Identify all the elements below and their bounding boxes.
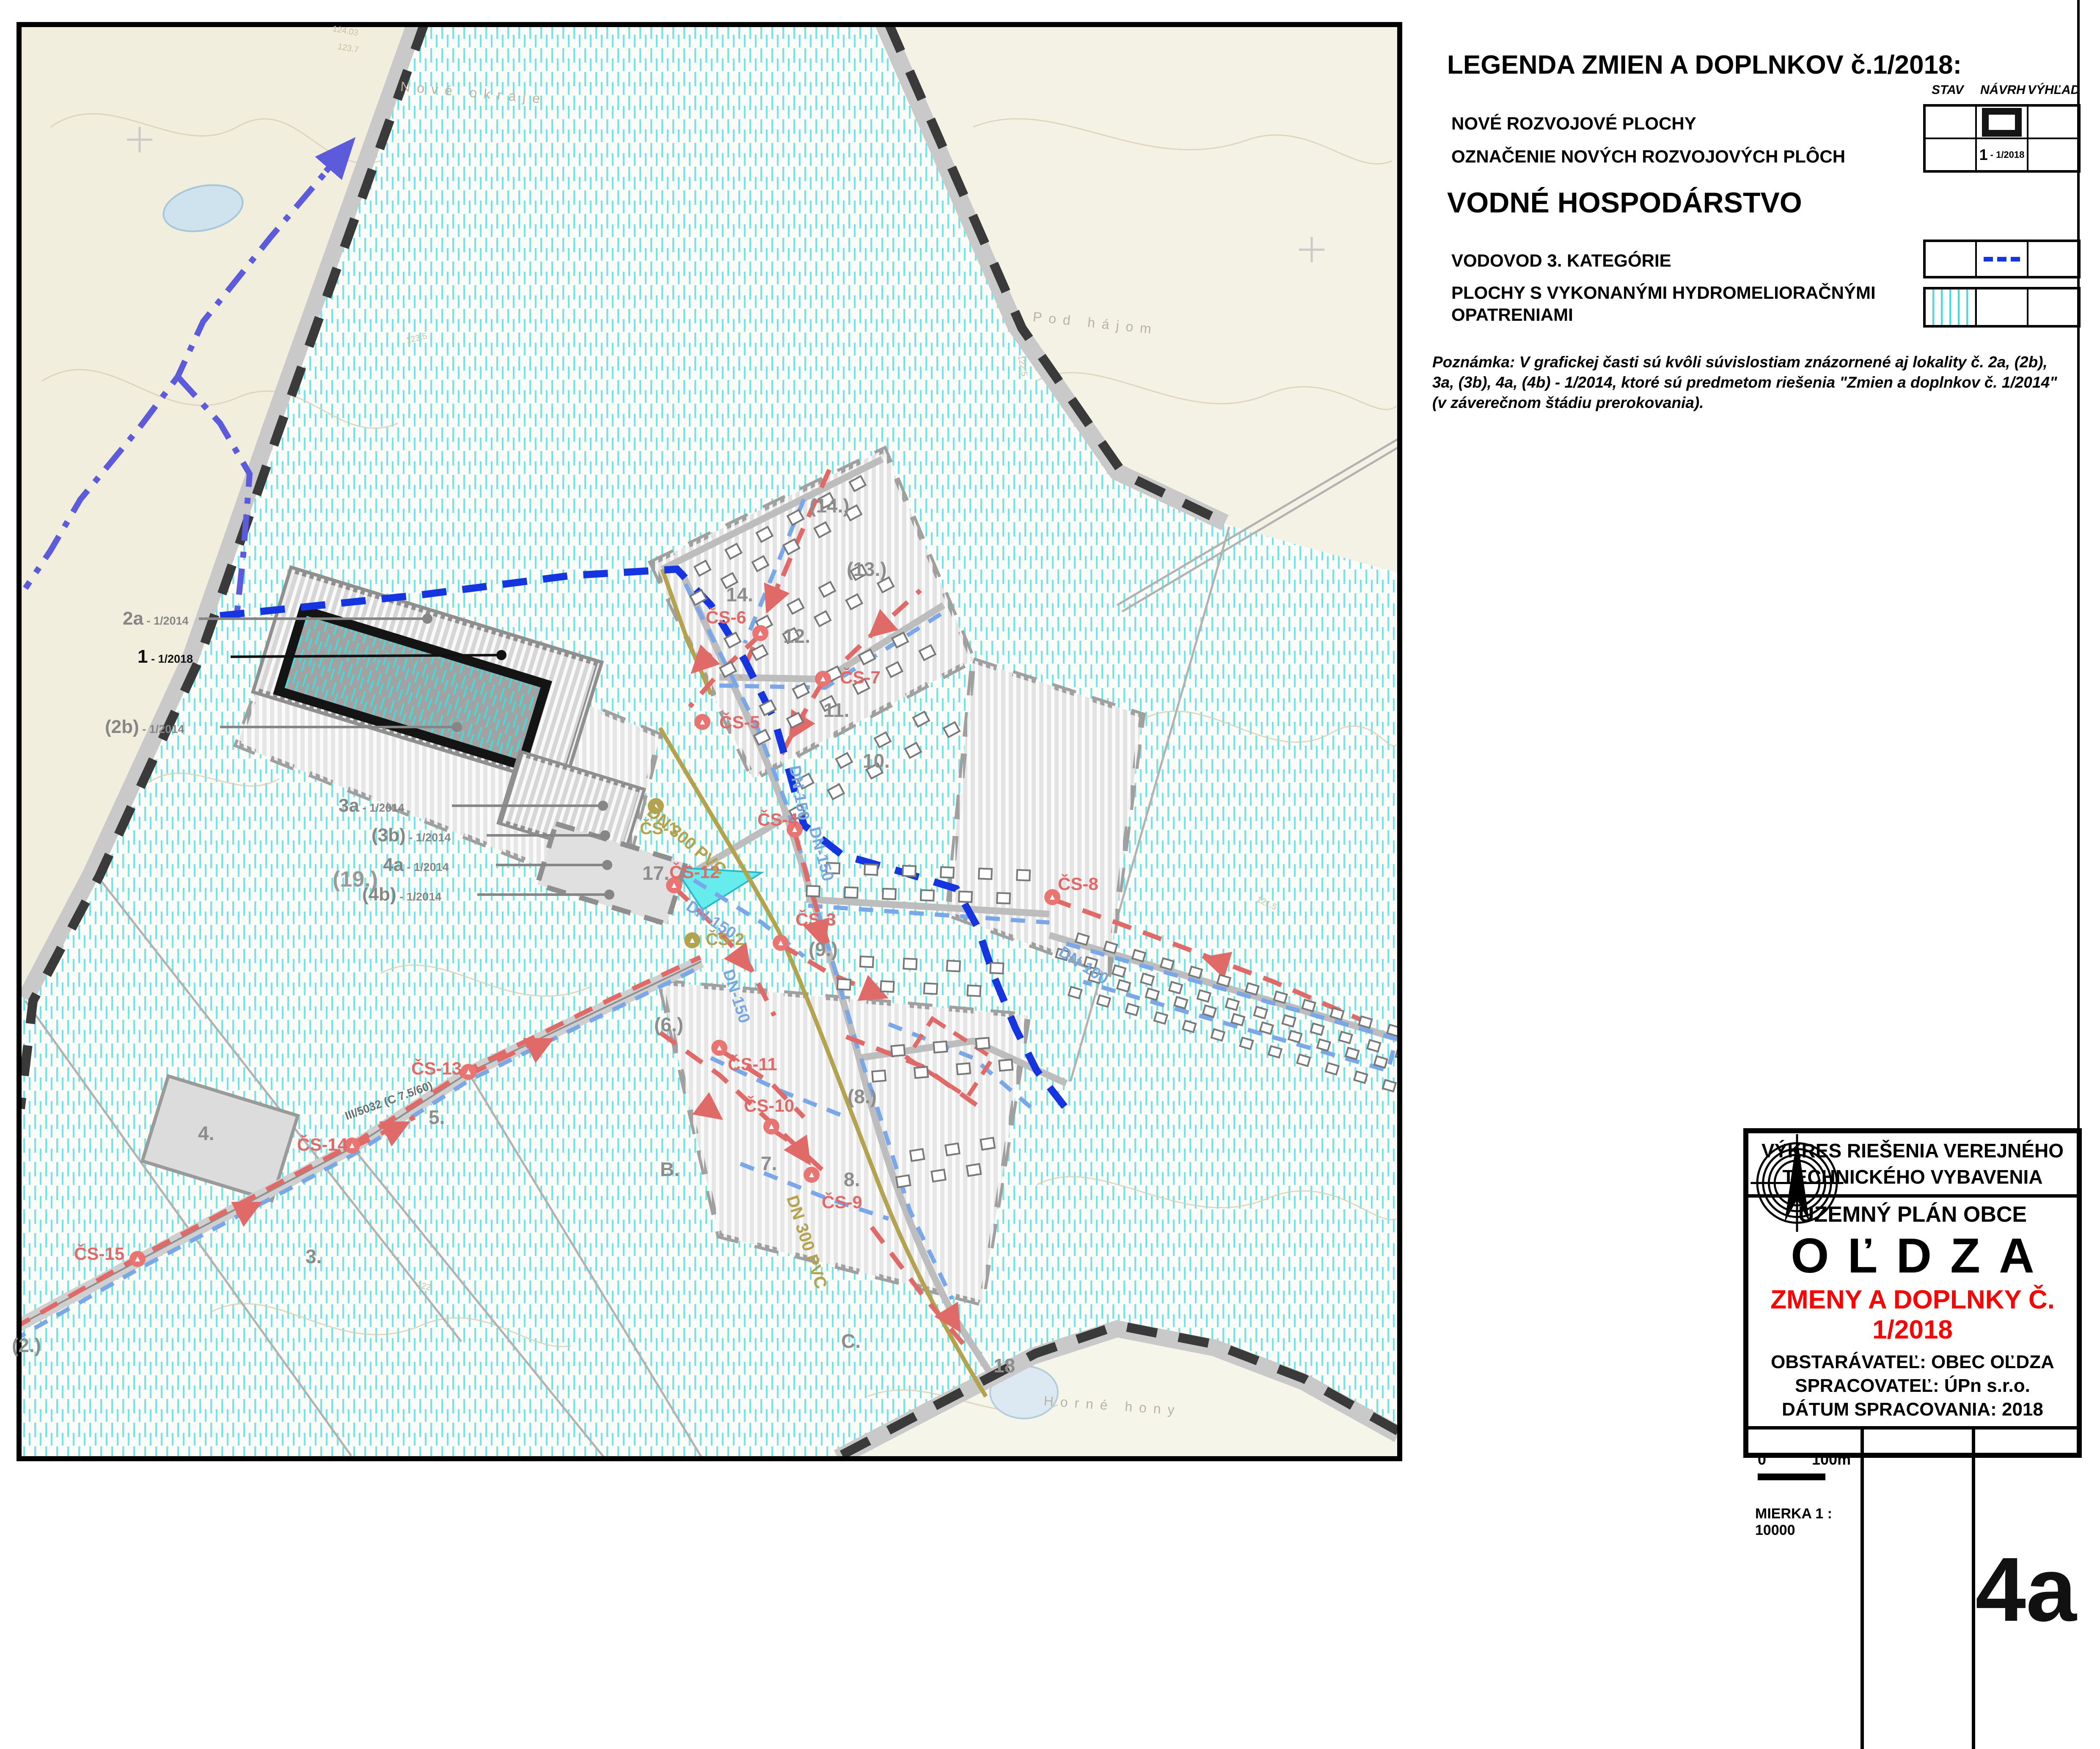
pump-station-icon: ▲ bbox=[684, 932, 700, 948]
pump-triangle-icon: ▲ bbox=[715, 1044, 724, 1052]
building-footprint bbox=[999, 1060, 1013, 1071]
legend-note: Poznámka: V grafickej časti sú kvôli súv… bbox=[1432, 352, 2071, 413]
pump-station-icon: ▲ bbox=[773, 935, 789, 951]
locality-callout: 2a - 1/2014 bbox=[123, 609, 189, 628]
locality-callout-main: 1 bbox=[138, 646, 148, 667]
building-footprint bbox=[1141, 974, 1154, 985]
building-footprint bbox=[1231, 1014, 1244, 1025]
building-footprint bbox=[1174, 997, 1187, 1008]
pump-station-label: ČS-11 bbox=[728, 1055, 777, 1073]
pump-triangle-icon: ▲ bbox=[670, 881, 678, 890]
building-footprint bbox=[921, 890, 934, 901]
building-footprint bbox=[872, 1071, 886, 1082]
scale-hundred: 100m bbox=[1812, 1451, 1851, 1468]
building-footprint bbox=[806, 886, 820, 896]
building-footprint bbox=[924, 983, 937, 994]
building-footprint bbox=[1126, 1004, 1139, 1015]
pump-station-icon: ▲ bbox=[804, 1167, 820, 1183]
vodovod-symbol bbox=[1984, 257, 2020, 262]
pump-triangle-icon: ▲ bbox=[464, 1068, 473, 1076]
area-number-label: 18 bbox=[994, 1356, 1015, 1375]
building-footprint bbox=[979, 868, 992, 879]
pump-station-label: ČS-4 bbox=[757, 811, 798, 829]
sym-designation-vyhlad bbox=[2028, 139, 2078, 170]
pump-station-label: ČS-8 bbox=[1058, 875, 1098, 893]
pump-triangle-icon: ▲ bbox=[767, 1122, 776, 1131]
building-footprint bbox=[883, 889, 896, 899]
scale-ratio: MIERKA 1 : 10000 bbox=[1755, 1506, 1861, 1539]
pump-station-label: ČS-10 bbox=[744, 1097, 794, 1115]
processor-line: SPRACOVATEĽ: ÚPn s.r.o. bbox=[1795, 1375, 2030, 1396]
area-number-label: 5. bbox=[429, 1107, 445, 1127]
pump-station-icon: ▲ bbox=[694, 714, 710, 730]
building-footprint bbox=[891, 1045, 905, 1056]
building-footprint bbox=[1297, 1055, 1310, 1066]
locality-callout-main: 4a bbox=[383, 854, 404, 875]
legend-symbol-table-rozvoj: 1 - 1/2018 bbox=[1923, 104, 2081, 173]
building-footprint bbox=[903, 959, 917, 969]
sym-plochy-vyhlad bbox=[2028, 289, 2078, 325]
building-footprint bbox=[957, 1063, 970, 1074]
building-footprint bbox=[845, 887, 858, 898]
locality-callout-suffix: - 1/2014 bbox=[143, 614, 189, 627]
area-number-label: 12. bbox=[783, 626, 810, 646]
locality-callout-main: (3b) bbox=[372, 825, 406, 846]
building-footprint bbox=[1189, 967, 1202, 978]
building-footprint bbox=[1246, 983, 1259, 994]
locality-callout: (3b) - 1/2014 bbox=[372, 826, 451, 845]
leader-line bbox=[602, 860, 612, 870]
locality-callout-main: 3a bbox=[339, 795, 359, 816]
legend-column-navrh: NÁVRH bbox=[1980, 83, 2026, 97]
leader-line bbox=[598, 801, 608, 811]
area-number-label: (14.) bbox=[809, 496, 850, 515]
area-number-label: (19.) bbox=[333, 868, 378, 890]
locality-callout-suffix: - 1/2014 bbox=[359, 802, 405, 814]
pump-station-icon: ▲ bbox=[711, 1040, 727, 1056]
sheet-number-cell: 4a bbox=[1975, 1429, 2077, 1749]
building-footprint bbox=[947, 961, 960, 971]
building-footprint bbox=[933, 1041, 947, 1052]
area-number-label: C. bbox=[841, 1331, 861, 1351]
building-footprint bbox=[1211, 1029, 1225, 1041]
locality-callout-main: (2b) bbox=[105, 716, 139, 737]
building-footprint bbox=[1260, 1022, 1273, 1034]
sym-vodovod-navrh bbox=[1977, 242, 2028, 276]
building-footprint bbox=[1161, 958, 1174, 970]
building-footprint bbox=[1240, 1038, 1253, 1049]
legend-panel: LEGENDA ZMIEN A DOPLNKOV č.1/2018: STAV … bbox=[1413, 0, 2078, 1100]
building-footprint bbox=[837, 979, 850, 990]
area-number-label: 17. bbox=[642, 863, 669, 883]
locality-callout-suffix: - 1/2014 bbox=[406, 831, 451, 844]
building-footprint bbox=[1274, 992, 1287, 1003]
building-footprint bbox=[1311, 1023, 1324, 1035]
legend-row-designation-label: OZNAČENIE NOVÝCH ROZVOJOVÝCH PLÔCH bbox=[1451, 146, 1845, 167]
pump-station-label: ČS-5 bbox=[719, 713, 760, 731]
designation-symbol-sub: - 1/2018 bbox=[1990, 149, 2025, 160]
building-footprint bbox=[1076, 934, 1089, 945]
area-number-label: (9.) bbox=[809, 939, 838, 959]
pump-station-icon: ▲ bbox=[129, 1251, 146, 1267]
legend-row-plochy-label-line2: OPATRENIAMI bbox=[1451, 305, 1573, 325]
building-footprint bbox=[1302, 1000, 1316, 1011]
scale-zero: 0 bbox=[1758, 1451, 1766, 1468]
building-footprint bbox=[1017, 870, 1030, 881]
leader-line bbox=[422, 614, 432, 624]
building-footprint bbox=[1203, 1005, 1216, 1017]
legend-symbol-table-plochy bbox=[1923, 287, 2081, 328]
legend-column-stav: STAV bbox=[1932, 83, 1964, 97]
building-footprint bbox=[1283, 1015, 1296, 1027]
scale-bar bbox=[1758, 1474, 1825, 1480]
area-number-label: 4. bbox=[198, 1124, 214, 1143]
building-footprint bbox=[959, 892, 972, 902]
building-footprint bbox=[1146, 989, 1159, 1000]
building-footprint bbox=[1367, 1040, 1380, 1052]
pump-triangle-icon: ▲ bbox=[698, 718, 707, 726]
area-number-label: (8.) bbox=[848, 1087, 877, 1106]
sym-newarea-navrh bbox=[1977, 107, 2028, 138]
building-footprint bbox=[1331, 1008, 1344, 1019]
sym-vodovod-stav bbox=[1926, 242, 1977, 276]
date-line: DÁTUM SPRACOVANIA: 2018 bbox=[1782, 1399, 2043, 1420]
building-footprint bbox=[1112, 965, 1126, 977]
building-footprint bbox=[976, 1038, 989, 1049]
locality-callout-suffix: - 1/2014 bbox=[404, 861, 449, 873]
building-footprint bbox=[997, 893, 1010, 903]
building-footprint bbox=[1326, 1063, 1339, 1074]
leader-line bbox=[452, 722, 462, 732]
building-footprint bbox=[1374, 1056, 1387, 1068]
legend-row-new-area-label: NOVÉ ROZVOJOVÉ PLOCHY bbox=[1451, 113, 1696, 134]
building-footprint bbox=[1117, 980, 1130, 992]
area-number-label: (13.) bbox=[847, 559, 887, 579]
locality-callout: 1 - 1/2018 bbox=[138, 647, 193, 666]
pump-station-icon: ▲ bbox=[460, 1064, 476, 1080]
building-footprint bbox=[1383, 1080, 1396, 1091]
pump-station-label: ČS-14 bbox=[297, 1136, 347, 1154]
new-area-symbol bbox=[1982, 108, 2022, 137]
sym-plochy-navrh bbox=[1977, 289, 2028, 325]
locality-callout: 3a - 1/2014 bbox=[339, 796, 405, 815]
area-number-label: 14. bbox=[726, 585, 753, 604]
building-footprint bbox=[1132, 950, 1145, 961]
building-footprint bbox=[941, 867, 954, 878]
building-footprint bbox=[1097, 995, 1110, 1007]
pump-station-icon: ▲ bbox=[815, 671, 831, 687]
scale-cell: 0 100m MIERKA 1 : 10000 bbox=[1748, 1429, 1864, 1749]
legend-row-plochy-label-line1: PLOCHY S VYKONANÝMI HYDROMELIORAČNÝMI bbox=[1451, 283, 1876, 303]
locality-callout-main: 2a bbox=[123, 608, 143, 629]
sym-designation-stav bbox=[1926, 139, 1977, 170]
locality-callout: (2b) - 1/2014 bbox=[105, 718, 184, 736]
area-number-label: 3. bbox=[306, 1247, 322, 1266]
pump-triangle-icon: ▲ bbox=[688, 936, 696, 945]
area-number-label: B. bbox=[660, 1160, 680, 1179]
building-footprint bbox=[910, 1149, 924, 1161]
hydromelioracia-symbol bbox=[1926, 289, 1975, 325]
building-footprint bbox=[967, 986, 980, 996]
title-block: VÝKRES RIEŠENIA VEREJNÉHO TECHNICKÉHO VY… bbox=[1743, 1128, 2082, 1458]
legend-symbol-table-vodovod bbox=[1923, 240, 2081, 278]
building-footprint bbox=[860, 956, 873, 967]
locality-callout-suffix: - 1/2018 bbox=[148, 653, 193, 665]
area-number-label: 7. bbox=[761, 1154, 777, 1173]
building-footprint bbox=[1354, 1071, 1367, 1083]
area-number-label: 10. bbox=[863, 751, 890, 771]
sheet-number: 4a bbox=[1975, 1537, 2076, 1642]
pump-triangle-icon: ▲ bbox=[348, 1141, 356, 1150]
building-footprint bbox=[945, 1143, 959, 1155]
building-footprint bbox=[1346, 1048, 1359, 1059]
area-number-label: 11. bbox=[823, 700, 849, 720]
north-arrow-cell bbox=[1864, 1429, 1975, 1749]
building-footprint bbox=[1226, 998, 1239, 1010]
pump-triangle-icon: ▲ bbox=[807, 1171, 816, 1179]
building-footprint bbox=[1169, 982, 1182, 993]
legend-section-heading: VODNÉ HOSPODÁRSTVO bbox=[1447, 186, 1802, 219]
building-footprint bbox=[1217, 975, 1230, 986]
sym-newarea-stav bbox=[1926, 107, 1977, 138]
pump-station-label: ČS-15 bbox=[74, 1245, 124, 1263]
building-footprint bbox=[1359, 1016, 1372, 1028]
locality-callout: 4a - 1/2014 bbox=[383, 856, 449, 874]
sym-newarea-vyhlad bbox=[2028, 107, 2078, 138]
building-footprint bbox=[914, 1067, 928, 1078]
pump-station-label: ČS-3 bbox=[795, 911, 836, 928]
north-arrow-icon bbox=[1748, 1133, 1846, 1233]
sym-plochy-stav bbox=[1926, 289, 1977, 325]
building-footprint bbox=[903, 866, 916, 876]
building-footprint bbox=[896, 1175, 910, 1187]
building-footprint bbox=[1288, 1031, 1302, 1042]
building-footprint bbox=[1183, 1021, 1196, 1032]
building-footprint bbox=[990, 963, 1003, 973]
pump-station-icon: ▲ bbox=[752, 625, 768, 641]
building-footprint bbox=[1068, 987, 1082, 998]
pump-triangle-icon: ▲ bbox=[1048, 893, 1057, 901]
building-footprint bbox=[1254, 1007, 1267, 1018]
locality-callout-suffix: - 1/2014 bbox=[139, 723, 184, 735]
pump-station-label: ČS-7 bbox=[840, 669, 881, 686]
building-footprint bbox=[967, 1164, 981, 1176]
building-footprint bbox=[1104, 942, 1117, 953]
pump-triangle-icon: ▲ bbox=[819, 675, 827, 683]
leader-line bbox=[604, 890, 614, 900]
pump-station-icon: ▲ bbox=[763, 1118, 779, 1135]
building-footprint bbox=[1154, 1012, 1167, 1024]
sym-designation-navrh: 1 - 1/2018 bbox=[1977, 139, 2028, 170]
area-number-label: (2.) bbox=[12, 1336, 41, 1355]
building-footprint bbox=[881, 981, 894, 992]
pump-station-label: ČS-9 bbox=[822, 1193, 862, 1211]
area-number-label: 8. bbox=[844, 1170, 860, 1189]
designation-symbol-main: 1 bbox=[1979, 146, 1988, 164]
pump-station-label: ČS-6 bbox=[706, 609, 746, 626]
amendment-title: ZMENY A DOPLNKY Č. 1/2018 bbox=[1752, 1285, 2073, 1345]
legend-column-vyhlad: VÝHĽAD bbox=[2028, 83, 2080, 97]
plan-sheet: 2a - 1/20141 - 1/2018(2b) - 1/20143a - 1… bbox=[0, 0, 2100, 1485]
building-footprint bbox=[931, 1170, 945, 1182]
client-line: OBSTARÁVATEĽ: OBEC OĽDZA bbox=[1771, 1352, 2054, 1373]
legend-title: LEGENDA ZMIEN A DOPLNKOV č.1/2018: bbox=[1447, 50, 1962, 80]
leader-line bbox=[600, 830, 610, 840]
building-footprint bbox=[981, 1138, 995, 1150]
pump-triangle-icon: ▲ bbox=[756, 629, 765, 637]
leader-line bbox=[496, 650, 506, 660]
building-footprint bbox=[1197, 990, 1211, 1002]
pump-triangle-icon: ▲ bbox=[133, 1255, 142, 1263]
legend-row-vodovod-label: VODOVOD 3. KATEGÓRIE bbox=[1451, 251, 1671, 271]
building-footprint bbox=[864, 864, 878, 875]
leader-line bbox=[231, 655, 501, 657]
pump-triangle-icon: ▲ bbox=[776, 939, 785, 947]
building-footprint bbox=[1317, 1039, 1330, 1051]
building-footprint bbox=[1339, 1032, 1352, 1043]
area-number-label: (6.) bbox=[654, 1015, 683, 1034]
title-block-bottom-row: 0 100m MIERKA 1 : 10000 4a bbox=[1748, 1429, 2077, 1749]
sym-vodovod-vyhlad bbox=[2028, 242, 2078, 276]
building-footprint bbox=[1269, 1046, 1282, 1058]
municipality-name: OĽDZA bbox=[1772, 1227, 2053, 1284]
pump-station-label: ČS-13 bbox=[411, 1060, 462, 1077]
locality-callout-suffix: - 1/2014 bbox=[396, 890, 442, 903]
